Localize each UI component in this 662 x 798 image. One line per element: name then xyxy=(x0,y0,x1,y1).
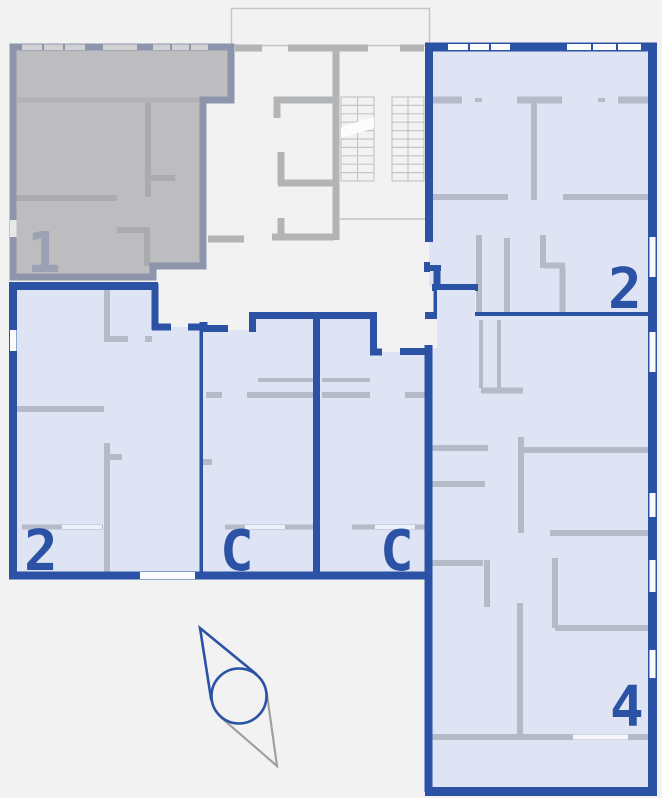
floor-plan: 1 2 C C xyxy=(0,0,662,798)
unit-4-label: 4 xyxy=(610,675,644,740)
left-block-bottom-window xyxy=(140,572,195,579)
unit-2b-windows xyxy=(10,330,17,351)
unit-1-label: 1 xyxy=(27,221,61,286)
unit-2b-closet-window xyxy=(62,525,102,529)
unit-2a-label: 2 xyxy=(608,257,642,322)
